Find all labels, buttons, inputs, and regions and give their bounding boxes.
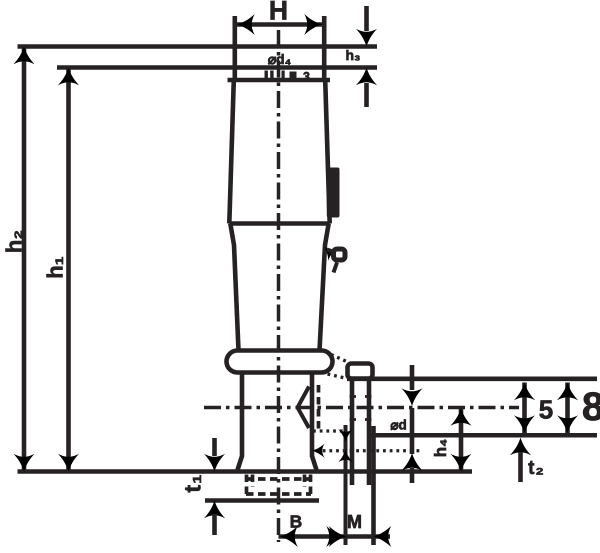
- svg-text:3: 3: [303, 70, 310, 84]
- svg-text:⌀d₄: ⌀d₄: [268, 52, 291, 67]
- svg-text:8: 8: [582, 385, 600, 429]
- svg-text:⌀d: ⌀d: [390, 418, 406, 433]
- svg-text:h₄: h₄: [431, 439, 450, 458]
- svg-text:t₁: t₁: [180, 473, 206, 492]
- svg-text:h₂: h₂: [2, 230, 27, 253]
- svg-text:5: 5: [539, 395, 553, 425]
- svg-text:B: B: [290, 512, 303, 532]
- svg-text:h₃: h₃: [345, 47, 360, 63]
- svg-text:t₂: t₂: [528, 458, 545, 479]
- svg-text:H: H: [269, 0, 288, 26]
- svg-text:h₁: h₁: [43, 256, 68, 279]
- svg-text:M: M: [347, 512, 362, 532]
